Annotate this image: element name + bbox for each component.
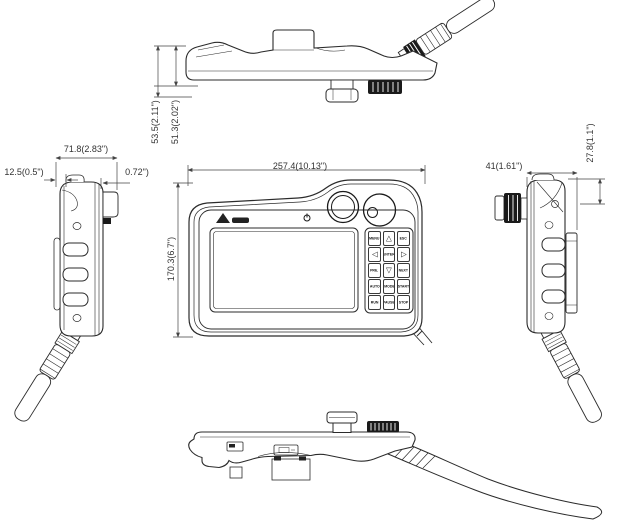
display-screen xyxy=(210,228,358,312)
keypad-overlay: MENU △ ESC ◁ ENTER ▷ PRE. ▽ NEXT AUTO MO… xyxy=(367,230,412,312)
run-button: RUN xyxy=(368,295,381,310)
pause-button: PAUSE xyxy=(383,295,396,310)
left-connector xyxy=(103,192,118,217)
left-top-bump xyxy=(66,175,84,182)
left-button: ◁ xyxy=(368,247,381,261)
knurled-knob-side xyxy=(367,421,399,433)
right-top-bump xyxy=(532,174,554,180)
dim-right-step-height: 27.8(1.1") xyxy=(585,113,595,173)
up-button: △ xyxy=(383,231,396,245)
dim-top-body-depth: 51.3(2.02") xyxy=(170,90,180,154)
top-body-outline xyxy=(186,30,437,80)
right-button: ▷ xyxy=(397,247,410,261)
dimension-drawing: 53.5(2.11") 51.3(2.02") 71.8(2.83") 12.5… xyxy=(0,0,620,523)
top-view xyxy=(140,0,510,140)
dim-left-width: 71.8(2.83") xyxy=(54,144,118,154)
dim-top-overall-depth: 53.5(2.11") xyxy=(150,90,160,154)
left-grip-ribs xyxy=(63,243,88,306)
right-grip-ribs xyxy=(542,238,565,303)
bottom-foot xyxy=(230,467,242,478)
pre-button: PRE. xyxy=(368,263,381,277)
selector-dial-top xyxy=(368,80,402,94)
dim-front-width: 257.4(10.13") xyxy=(255,161,345,171)
left-connector-latch xyxy=(103,218,111,224)
left-body-outline xyxy=(60,182,103,336)
right-body-outline xyxy=(527,180,565,333)
left-grip-rail xyxy=(54,238,60,310)
auto-button: AUTO xyxy=(368,279,381,293)
down-button: ▽ xyxy=(383,263,396,277)
emergency-stop-top xyxy=(326,80,358,102)
left-cable xyxy=(10,326,82,425)
stop-button: STOP xyxy=(397,295,410,310)
knurled-knob xyxy=(495,193,527,223)
bottom-view xyxy=(170,390,620,523)
dim-right-width: 41(1.61") xyxy=(472,161,536,171)
belt-hook xyxy=(566,233,577,313)
emergency-stop-side xyxy=(327,412,357,433)
bottom-bracket xyxy=(272,457,310,481)
start-button: START xyxy=(397,279,410,293)
esc-button: ESC xyxy=(397,231,410,245)
front-view xyxy=(165,160,475,355)
dim-front-height: 170.3(6.7") xyxy=(166,227,176,291)
next-button: NEXT xyxy=(397,263,410,277)
bottom-cable xyxy=(388,442,602,519)
usb-port xyxy=(274,445,298,455)
enter-button: ENTER xyxy=(383,247,396,261)
mode-button: MODE xyxy=(383,279,396,293)
dim-left-grip-offset: 12.5(0.5") xyxy=(0,167,49,177)
dim-left-step: 0.72") xyxy=(117,167,157,177)
menu-button: MENU xyxy=(368,231,381,245)
